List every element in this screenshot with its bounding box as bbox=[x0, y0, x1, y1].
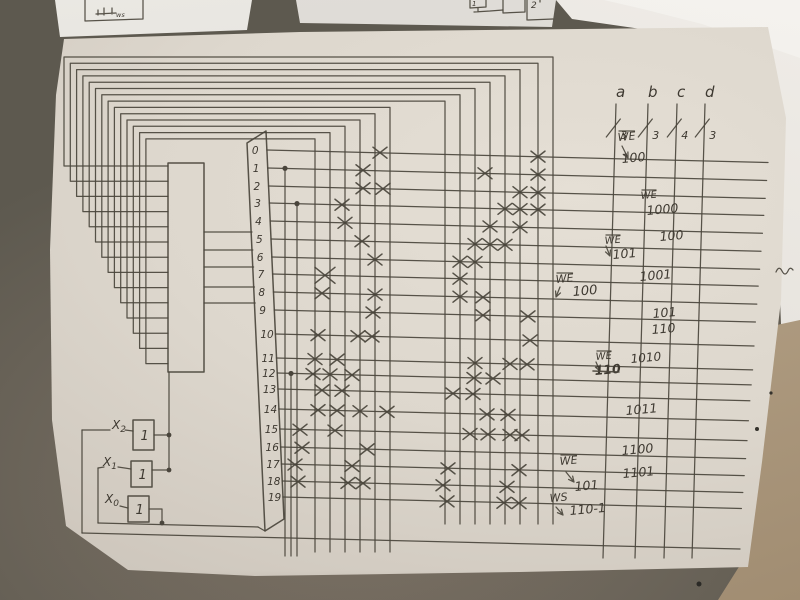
main-sketch-paper bbox=[0, 0, 800, 600]
photo-scene: 012345678910111213141516171819a3b3c4d3WE… bbox=[0, 0, 800, 600]
